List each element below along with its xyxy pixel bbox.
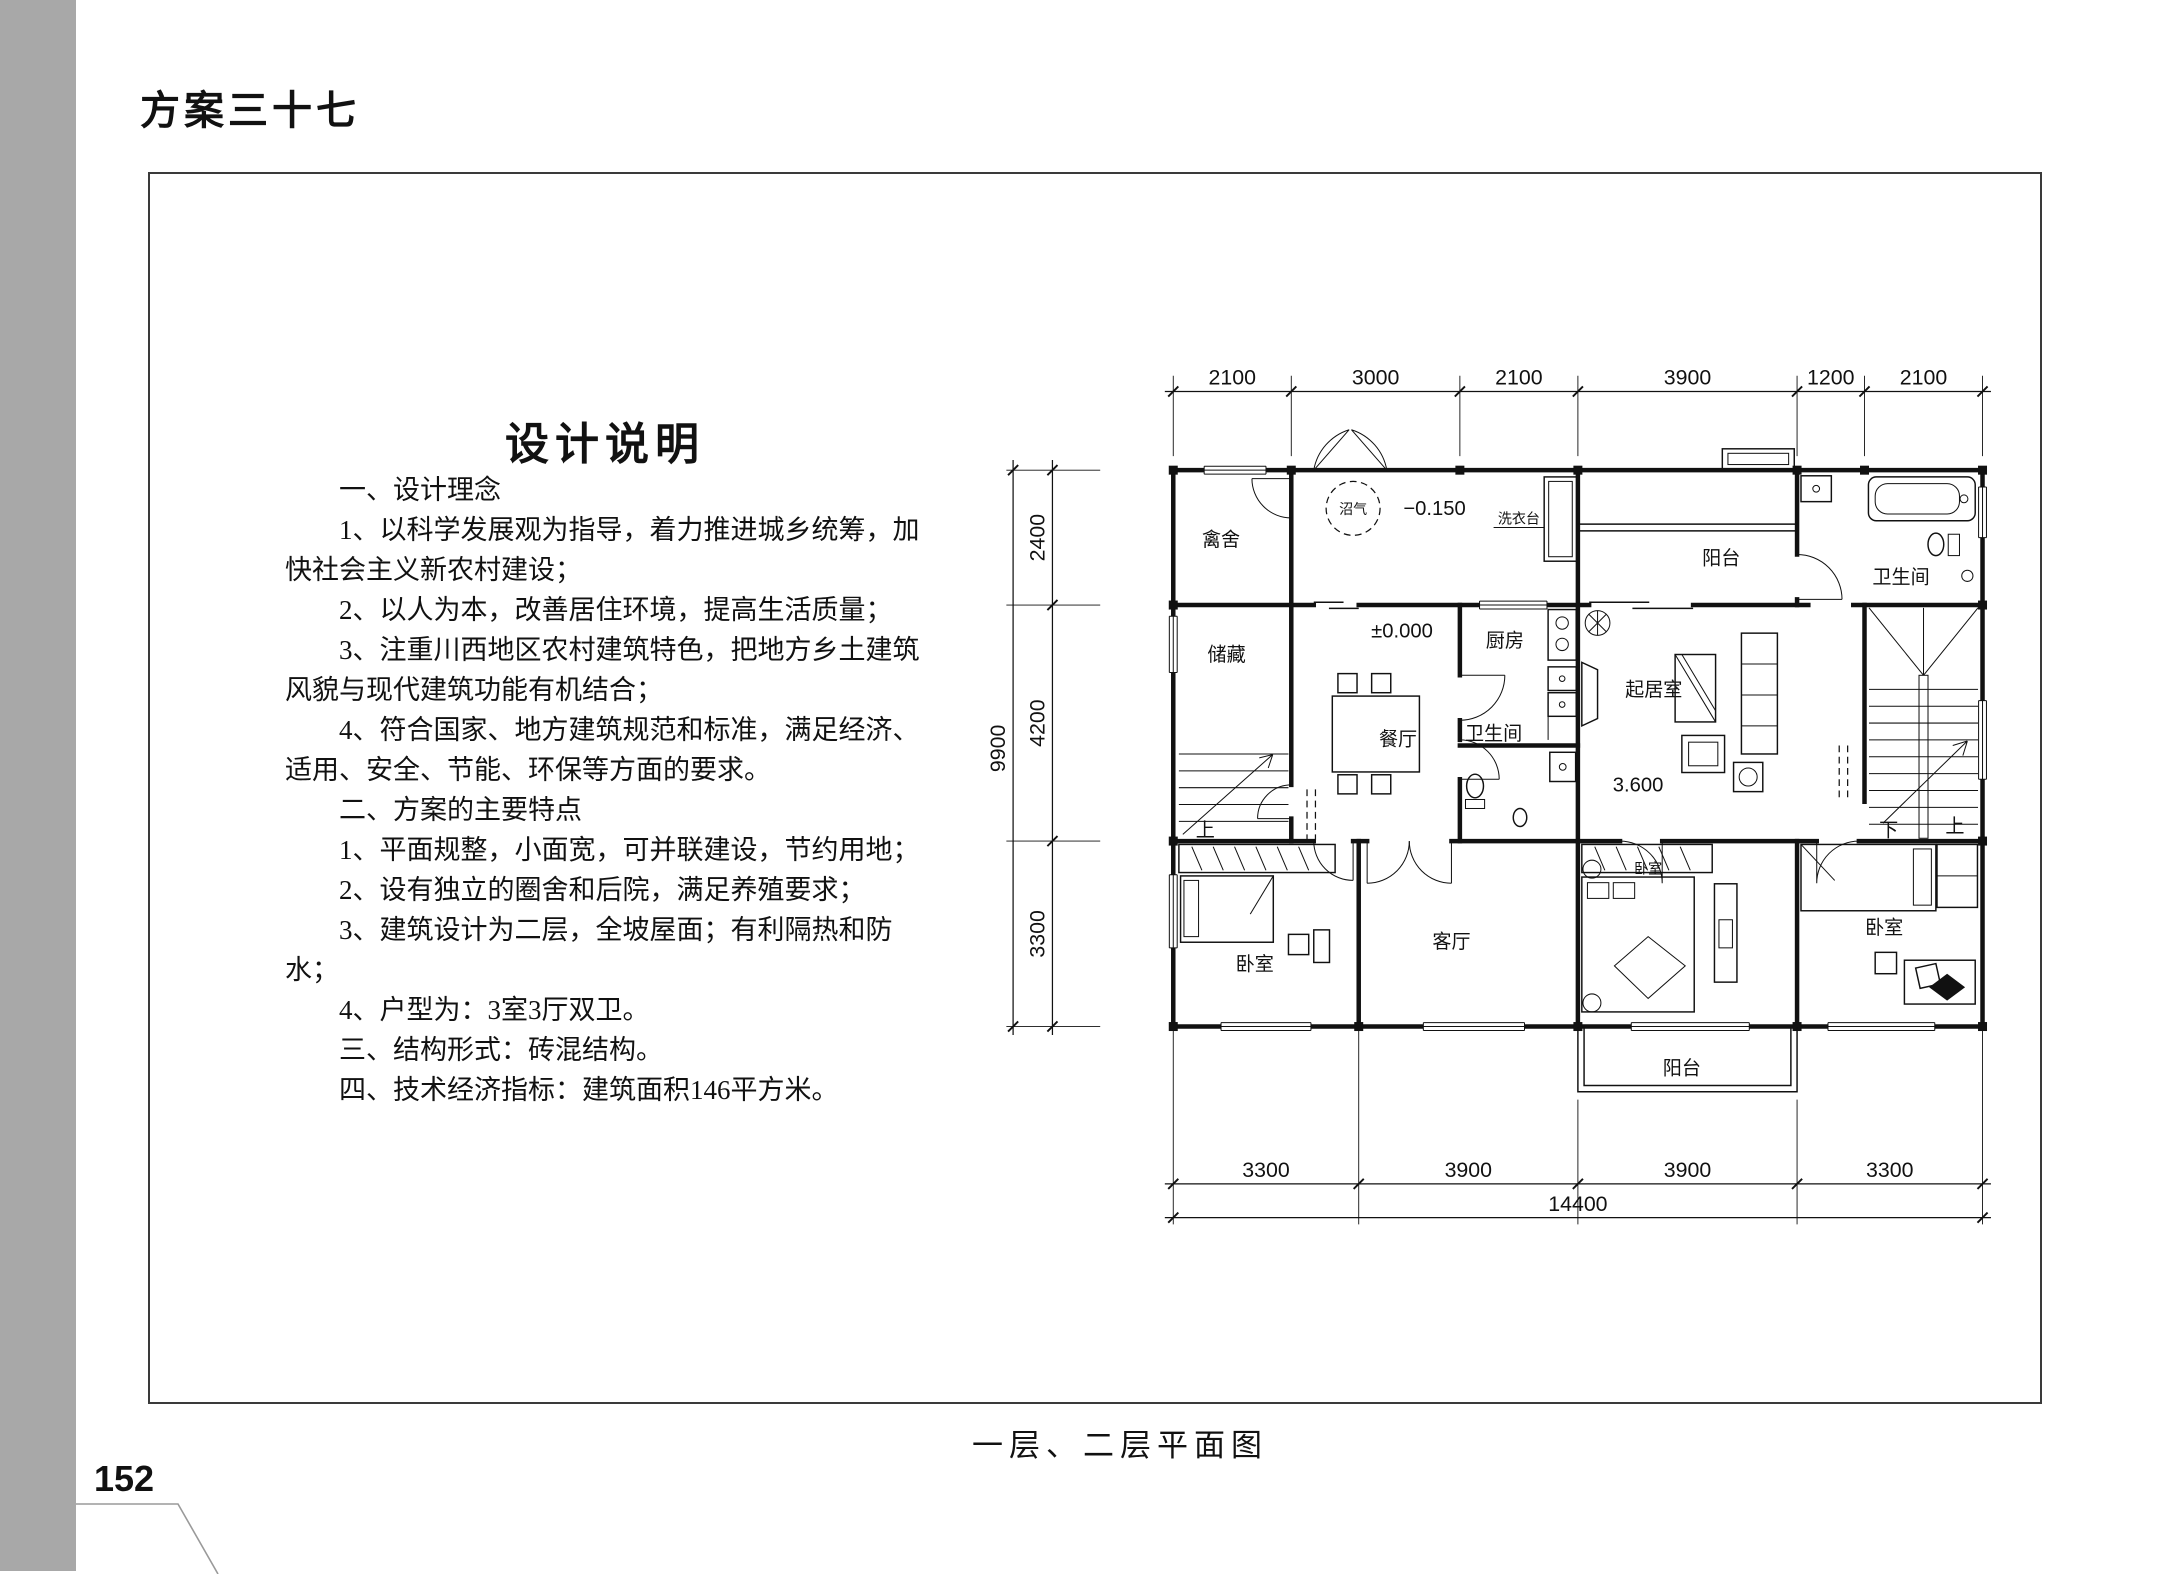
door-swings: [1252, 430, 1859, 884]
stair-up-right: 上: [1945, 816, 1964, 838]
desc-line: 2、设有独立的圈舍和后院，满足养殖要求；: [285, 870, 945, 910]
level-ground: ±0.000: [1371, 621, 1433, 643]
bedroom1-furniture: [1179, 844, 1335, 962]
desc-line: 适用、安全、节能、环保等方面的要求。: [285, 750, 945, 790]
dim-top-5: 1200: [1807, 366, 1855, 390]
label-laundry: 洗衣台: [1498, 511, 1540, 527]
dim-left-total: 9900: [986, 724, 1010, 772]
kitchen-counter: [1548, 610, 1576, 740]
room-label-balcony-bottom: 阳台: [1663, 1057, 1701, 1079]
desc-line: 三、结构形式：砖混结构。: [285, 1030, 945, 1070]
room-label-poultry: 禽舍: [1202, 529, 1240, 551]
dim-bottom-3: 3900: [1664, 1158, 1712, 1182]
desc-line: 2、以人为本，改善居住环境，提高生活质量；: [285, 590, 945, 630]
stair-down-right: 下: [1879, 821, 1898, 842]
room-label-storage: 储藏: [1208, 644, 1246, 666]
room-label-bath2: 卫生间: [1872, 567, 1929, 589]
room-label-kitchen: 厨房: [1486, 630, 1524, 652]
design-notes-heading: 设计说明: [285, 408, 925, 472]
desc-line: 快社会主义新农村建设；: [285, 550, 945, 590]
desc-line: 二、方案的主要特点: [285, 790, 945, 830]
stair-up-left: 上: [1196, 820, 1215, 842]
desc-line: 4、符合国家、地方建筑规范和标准，满足经济、: [285, 710, 945, 750]
level-upper: 3.600: [1613, 775, 1664, 797]
page-edge-gray-band: [0, 0, 76, 1571]
level-yard: −0.150: [1403, 498, 1465, 520]
dim-left-1: 2400: [1026, 514, 1050, 562]
desc-line: 1、以科学发展观为指导，着力推进城乡统筹，加: [285, 510, 945, 550]
dim-top-3: 2100: [1495, 366, 1543, 390]
desc-line: 3、建筑设计为二层，全坡屋面；有利隔热和防: [285, 910, 945, 950]
livingroom-furniture: [1582, 611, 1778, 792]
desc-line: 一、设计理念: [285, 470, 945, 510]
room-label-bedroom3: 卧室: [1865, 917, 1903, 939]
walls: [1173, 470, 1982, 1026]
bathroom1-fixtures: [1465, 752, 1575, 826]
dim-bottom-2: 3900: [1445, 1158, 1493, 1182]
page-footer-line: [76, 1494, 336, 1574]
room-label-balcony-top: 阳台: [1702, 548, 1740, 570]
stair-right: [1869, 608, 1978, 838]
dim-top-1: 2100: [1209, 366, 1257, 390]
room-label-bath1: 卫生间: [1465, 723, 1522, 745]
dim-top-6: 2100: [1900, 366, 1948, 390]
desc-line: 4、户型为：3室3厅双卫。: [285, 990, 945, 1030]
room-label-living2f: 起居室: [1625, 679, 1682, 701]
dim-top-4: 3900: [1664, 366, 1712, 390]
label-biogas: 沼气: [1339, 501, 1367, 517]
floor-plan-drawing: 2100 3000 2100 3900 1200 2100 2400 4200 …: [985, 352, 2005, 1229]
room-label-parlor: 客厅: [1432, 931, 1470, 953]
dimension-extension-lines: [1006, 376, 1982, 1225]
dim-bottom-1: 3300: [1242, 1158, 1290, 1182]
design-notes-text: 一、设计理念 1、以科学发展观为指导，着力推进城乡统筹，加 快社会主义新农村建设…: [285, 470, 945, 1110]
dim-bottom-total: 14400: [1548, 1192, 1607, 1216]
dim-left-3: 3300: [1026, 910, 1050, 958]
desc-line: 3、注重川西地区农村建筑特色，把地方乡土建筑: [285, 630, 945, 670]
page-title: 方案三十七: [140, 78, 360, 136]
dim-top-2: 3000: [1352, 366, 1400, 390]
room-label-bedroom1: 卧室: [1236, 953, 1274, 975]
room-label-bedroom2: 卧室: [1634, 861, 1662, 877]
dim-left-2: 4200: [1026, 699, 1050, 747]
desc-line: 四、技术经济指标：建筑面积146平方米。: [285, 1070, 945, 1110]
desc-line: 风貌与现代建筑功能有机结合；: [285, 670, 945, 710]
figure-caption: 一层、二层平面图: [940, 1420, 1300, 1465]
dim-bottom-4: 3300: [1866, 1158, 1914, 1182]
desc-line: 1、平面规整，小面宽，可并联建设，节约用地；: [285, 830, 945, 870]
book-page: { "page": { "title": "方案三十七", "number": …: [0, 0, 2173, 1571]
room-label-dining: 餐厅: [1379, 729, 1417, 751]
desc-line: 水；: [285, 950, 945, 990]
